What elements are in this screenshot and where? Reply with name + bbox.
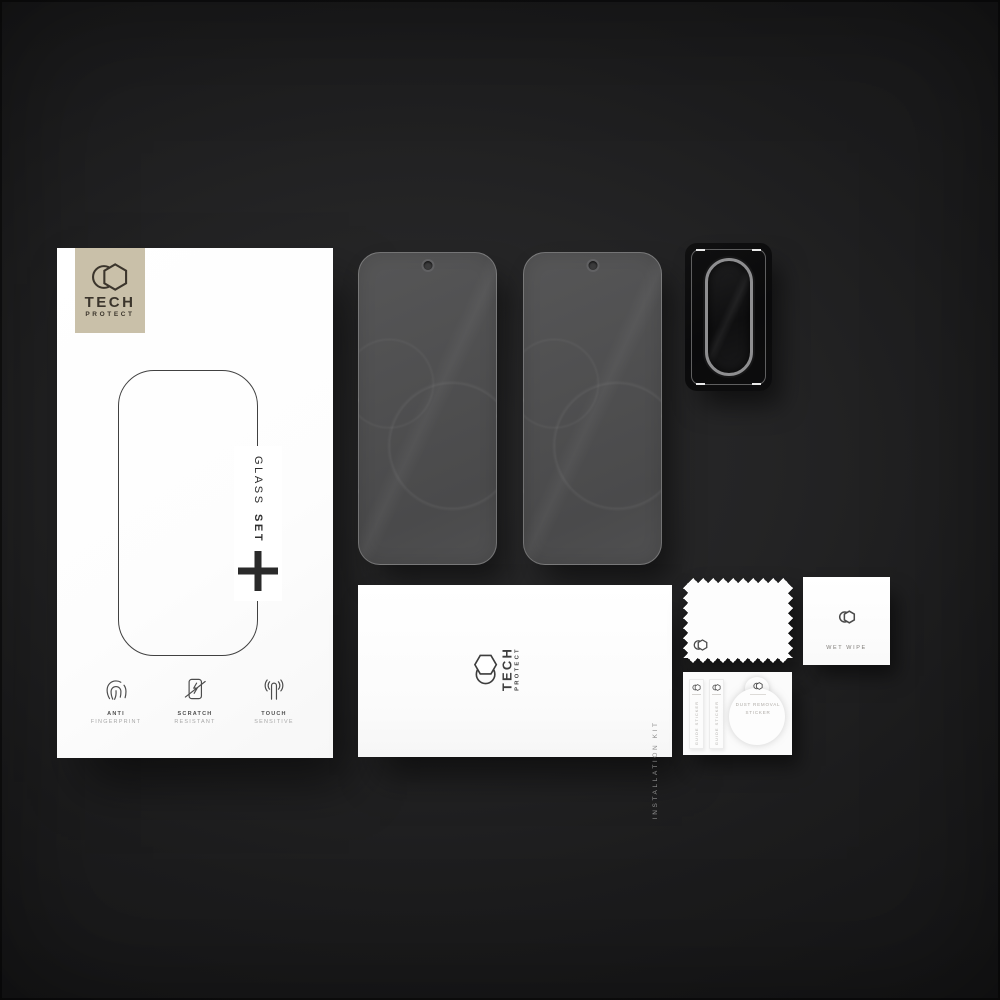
corner-tick: [752, 249, 761, 251]
glass-set-mark: GLASSSET: [234, 446, 282, 601]
guide-sticker-label: GUIDE STICKER: [694, 701, 699, 745]
installation-kit-label: INSTALLATION KIT: [652, 720, 659, 819]
brand-name: TECH: [501, 647, 514, 691]
feature-anti-fingerprint: ANTI FINGERPRINT: [85, 674, 147, 725]
guide-sticker-strip: GUIDE STICKER: [709, 679, 724, 749]
touch-icon: [259, 674, 289, 704]
guide-sticker-strip: GUIDE STICKER: [689, 679, 704, 749]
dust-removal-sticker-content: DUST REMOVAL STICKER: [730, 682, 786, 716]
brand-logo-badge: TECH PROTECT: [75, 248, 145, 333]
dust-removal-label-line2: STICKER: [745, 709, 770, 717]
fingerprint-icon: [101, 674, 131, 704]
brand-name: TECH: [85, 295, 136, 310]
stickers-panel: GUIDE STICKER GUIDE STICKER DUST REMOVAL…: [683, 672, 792, 755]
brand-subname: PROTECT: [85, 312, 134, 319]
hexagon-crescent-icon: [473, 652, 499, 686]
camera-punch-hole: [423, 261, 432, 270]
feature-scratch-resistant: SCRATCH RESISTANT: [164, 674, 226, 725]
corner-tick: [752, 383, 761, 385]
hexagon-icon: [693, 639, 708, 651]
corner-tick: [696, 249, 705, 251]
wet-wipe-label: WET WIPE: [826, 645, 867, 651]
tempered-glass-2: [523, 252, 662, 565]
cleaning-cloth-sachet: [683, 578, 793, 663]
guide-sticker-label: GUIDE STICKER: [714, 701, 719, 745]
camera-punch-hole: [588, 261, 597, 270]
dust-removal-label-line1: DUST REMOVAL: [736, 701, 781, 709]
brand-subname: PROTECT: [516, 647, 522, 691]
feature-icons-row: ANTI FINGERPRINT SCRATCH RESISTANT: [85, 674, 305, 725]
wet-wipe-packet: WET WIPE: [803, 577, 890, 665]
hexagon-icon: [692, 684, 701, 691]
scratch-icon: [180, 674, 210, 704]
retail-box: TECH PROTECT GLASSSET ANTI FINGERPRINT: [57, 248, 333, 758]
tempered-glass-1: [358, 252, 497, 565]
installation-kit-envelope: TECH PROTECT INSTALLATION KIT: [358, 585, 672, 757]
glass-set-label: GLASSSET: [252, 456, 264, 543]
corner-tick: [696, 383, 705, 385]
hexagon-icon: [838, 610, 856, 624]
hexagon-crescent-icon: [90, 262, 130, 292]
feature-touch-sensitive: TOUCH SENSITIVE: [243, 674, 305, 725]
brand-logo-rotated: TECH PROTECT: [473, 647, 522, 691]
lens-glass-pill: [705, 258, 753, 376]
camera-lens-protector: [685, 243, 772, 391]
hexagon-icon: [712, 684, 721, 691]
hexagon-icon: [753, 682, 763, 690]
product-photo-stage: TECH PROTECT GLASSSET ANTI FINGERPRINT: [0, 0, 1000, 1000]
plus-icon: [238, 551, 278, 591]
